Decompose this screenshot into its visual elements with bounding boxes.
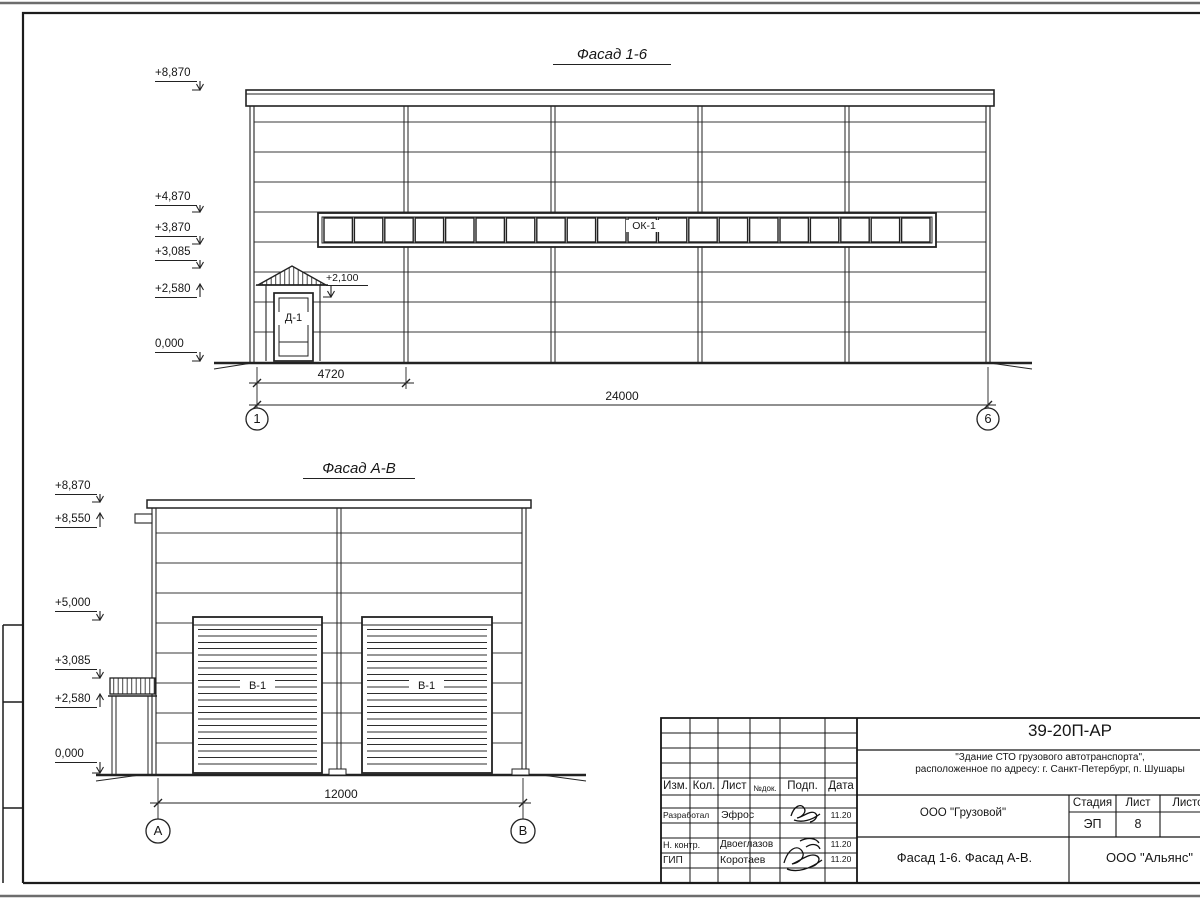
dimension-label-4720: 4720 [291,368,371,382]
titleblock-project-line1: "Здание СТО грузового автотранспорта", [880,752,1200,764]
axis-bubble-6: 6 [977,412,999,427]
door-label-d1: Д-1 [277,312,310,325]
elevation-mark: +3,085 [55,655,97,670]
titleblock-row-name: Эфрос [721,809,754,821]
titleblock-col-list: Лист [718,780,750,793]
elevation-arrows-facadeAB [92,494,104,773]
drawing-sheet: Фасад 1-6 +8,870 +4,870 +3,870 +3,085 +2… [0,0,1200,900]
axis-bubble-1: 1 [246,412,268,427]
titleblock-doc-number: 39-20П-АР [900,721,1200,741]
titleblock-col-izm: Изм. [661,780,690,793]
elevation-mark: +5,000 [55,597,97,612]
elevation-mark: +8,870 [55,480,97,495]
titleblock-sheet-title: Фасад 1-6. Фасад А-В. [860,851,1069,866]
elevation-mark: +2,580 [55,693,97,708]
signature-gip [784,839,822,871]
elevation-mark: 0,000 [55,748,97,763]
titleblock-row-date: 11.20 [826,811,856,821]
titleblock-sheets-label: Листов [1160,797,1200,810]
door-label-v1-left: В-1 [240,680,275,693]
roller-door-slats-left [198,629,317,770]
titleblock-col-kol: Кол. [690,780,718,793]
titleblock-col-ndok: №док. [750,784,780,793]
elevation-mark: +3,870 [155,222,197,237]
titleblock-row-date: 11.20 [826,855,856,865]
facade16-title: Фасад 1-6 [553,46,671,65]
dimension-label-12000: 12000 [300,788,382,802]
titleblock-row-name: Коротаев [720,854,765,866]
titleblock-company: ООО "Альянс" [1072,851,1200,866]
elevation-mark: +2,580 [155,283,197,298]
axis-bubble-b: В [512,824,534,839]
titleblock-project-line2: расположенное по адресу: г. Санкт-Петерб… [880,764,1200,776]
axis-bubble-a: А [147,824,169,839]
titleblock-client: ООО "Грузовой" [859,807,1067,820]
titleblock-row-role: Разработал [663,811,709,821]
titleblock-sheet-label: Лист [1116,797,1160,810]
dimension-label-24000: 24000 [582,390,662,404]
titleblock-row-role: ГИП [663,855,683,867]
canopy-elevation-mark: +2,100 [326,272,368,286]
roller-door-slats-right [367,629,487,770]
facadeAB-title: Фасад А-В [303,460,415,479]
elevation-mark: +8,550 [55,513,97,528]
titleblock-row-date: 11.20 [826,840,856,850]
elevation-mark: 0,000 [155,338,197,353]
titleblock-row-name: Двоеглазов [720,839,773,851]
door-label-v1-right: В-1 [409,680,444,693]
titleblock-col-data: Дата [825,780,857,793]
titleblock-sheet-value: 8 [1116,817,1160,831]
titleblock-col-podp: Подп. [780,780,825,793]
titleblock-stage-value: ЭП [1069,817,1116,831]
elevation-mark: +4,870 [155,191,197,206]
window-band-label: ОК-1 [626,220,662,232]
elevation-mark: +8,870 [155,67,197,82]
elevation-mark: +3,085 [155,246,197,261]
titleblock-stage-label: Стадия [1069,797,1116,810]
titleblock-row-role: Н. контр. [663,840,700,850]
